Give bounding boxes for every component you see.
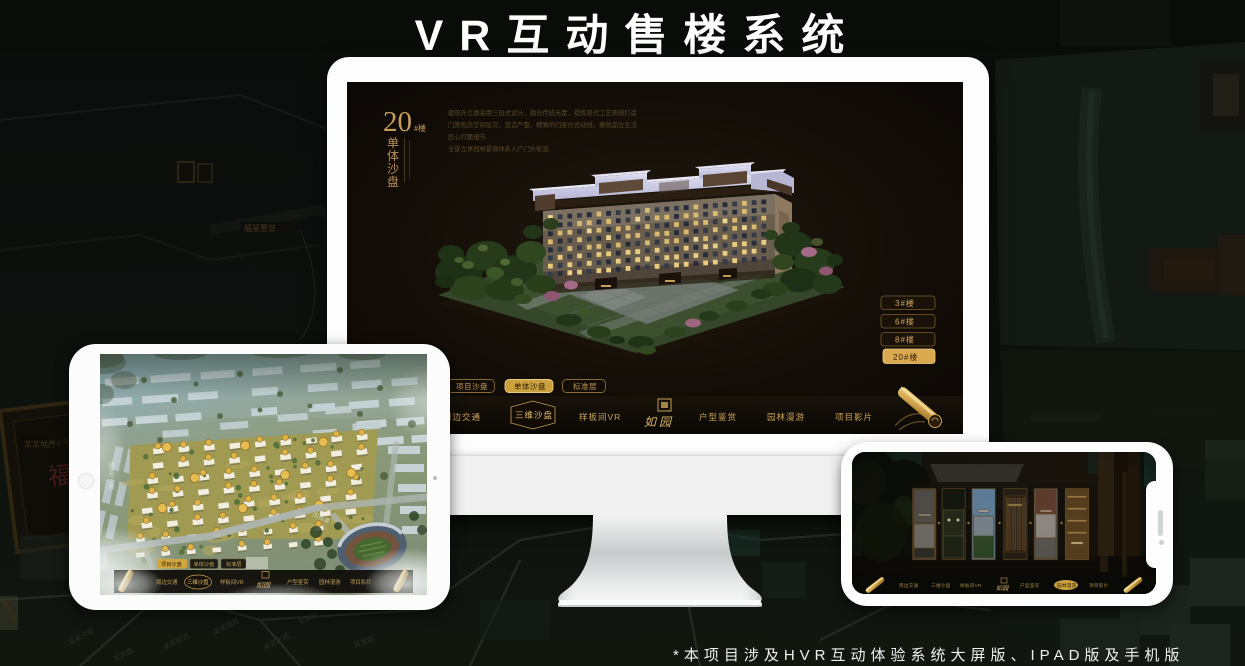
svg-text:单体沙盘: 单体沙盘 bbox=[514, 381, 546, 391]
svg-text:体: 体 bbox=[387, 149, 399, 163]
svg-text:20#楼: 20#楼 bbox=[893, 352, 918, 362]
svg-text:门第观念空间层次，营造严整、精致的归家仪式动线，雅致品位生活: 门第观念空间层次，营造严整、精致的归家仪式动线，雅致品位生活 bbox=[448, 120, 638, 129]
svg-text:8#楼: 8#楼 bbox=[895, 335, 915, 345]
svg-text:三维沙盘: 三维沙盘 bbox=[515, 410, 553, 420]
svg-text:20: 20 bbox=[383, 106, 412, 138]
svg-text:项目影片: 项目影片 bbox=[1089, 582, 1109, 589]
svg-text:#楼: #楼 bbox=[414, 123, 426, 133]
svg-text:某某地产: 某某地产 bbox=[24, 439, 56, 449]
svg-text:样板间VR: 样板间VR bbox=[579, 412, 621, 422]
svg-text:建筑外立面采用三段式设计，融合传统元素，提炼现代工艺质感打造: 建筑外立面采用三段式设计，融合传统元素，提炼现代工艺质感打造 bbox=[448, 108, 638, 117]
svg-text:如园: 如园 bbox=[644, 415, 674, 429]
svg-text:园林漫游: 园林漫游 bbox=[319, 578, 341, 586]
svg-text:样板间VR: 样板间VR bbox=[220, 578, 244, 586]
svg-text:如园: 如园 bbox=[996, 584, 1009, 592]
svg-text:标准层: 标准层 bbox=[573, 381, 597, 391]
svg-text:单体沙盘: 单体沙盘 bbox=[194, 560, 215, 568]
svg-text:6#楼: 6#楼 bbox=[895, 317, 915, 327]
svg-text:匠心打磨细节.: 匠心打磨细节. bbox=[448, 132, 488, 141]
svg-text:标准层: 标准层 bbox=[226, 560, 242, 568]
svg-text:户型鉴赏: 户型鉴赏 bbox=[699, 412, 737, 422]
svg-text:项目影片: 项目影片 bbox=[835, 412, 873, 422]
svg-text:园林漫游: 园林漫游 bbox=[767, 412, 805, 422]
svg-text:户型鉴赏: 户型鉴赏 bbox=[1020, 582, 1040, 589]
svg-text:单: 单 bbox=[387, 136, 399, 150]
svg-text:项目沙盘: 项目沙盘 bbox=[456, 381, 488, 391]
svg-text:园区三街: 园区三街 bbox=[107, 462, 114, 490]
svg-text:3#楼: 3#楼 bbox=[895, 298, 915, 308]
svg-text:周边交通: 周边交通 bbox=[899, 582, 919, 589]
svg-text:盘: 盘 bbox=[387, 174, 399, 189]
svg-text:三维沙盘: 三维沙盘 bbox=[931, 582, 951, 589]
svg-text:沙: 沙 bbox=[387, 162, 399, 176]
svg-text:三维沙盘: 三维沙盘 bbox=[187, 578, 209, 586]
svg-text:项目沙盘: 项目沙盘 bbox=[161, 560, 182, 568]
svg-text:福星惠誉: 福星惠誉 bbox=[244, 223, 276, 233]
svg-text:园林漫游: 园林漫游 bbox=[1057, 582, 1077, 589]
svg-text:样板间VR: 样板间VR bbox=[960, 582, 982, 589]
svg-text:全景立体园林景观体系入户门头彰显.: 全景立体园林景观体系入户门头彰显. bbox=[448, 144, 551, 153]
